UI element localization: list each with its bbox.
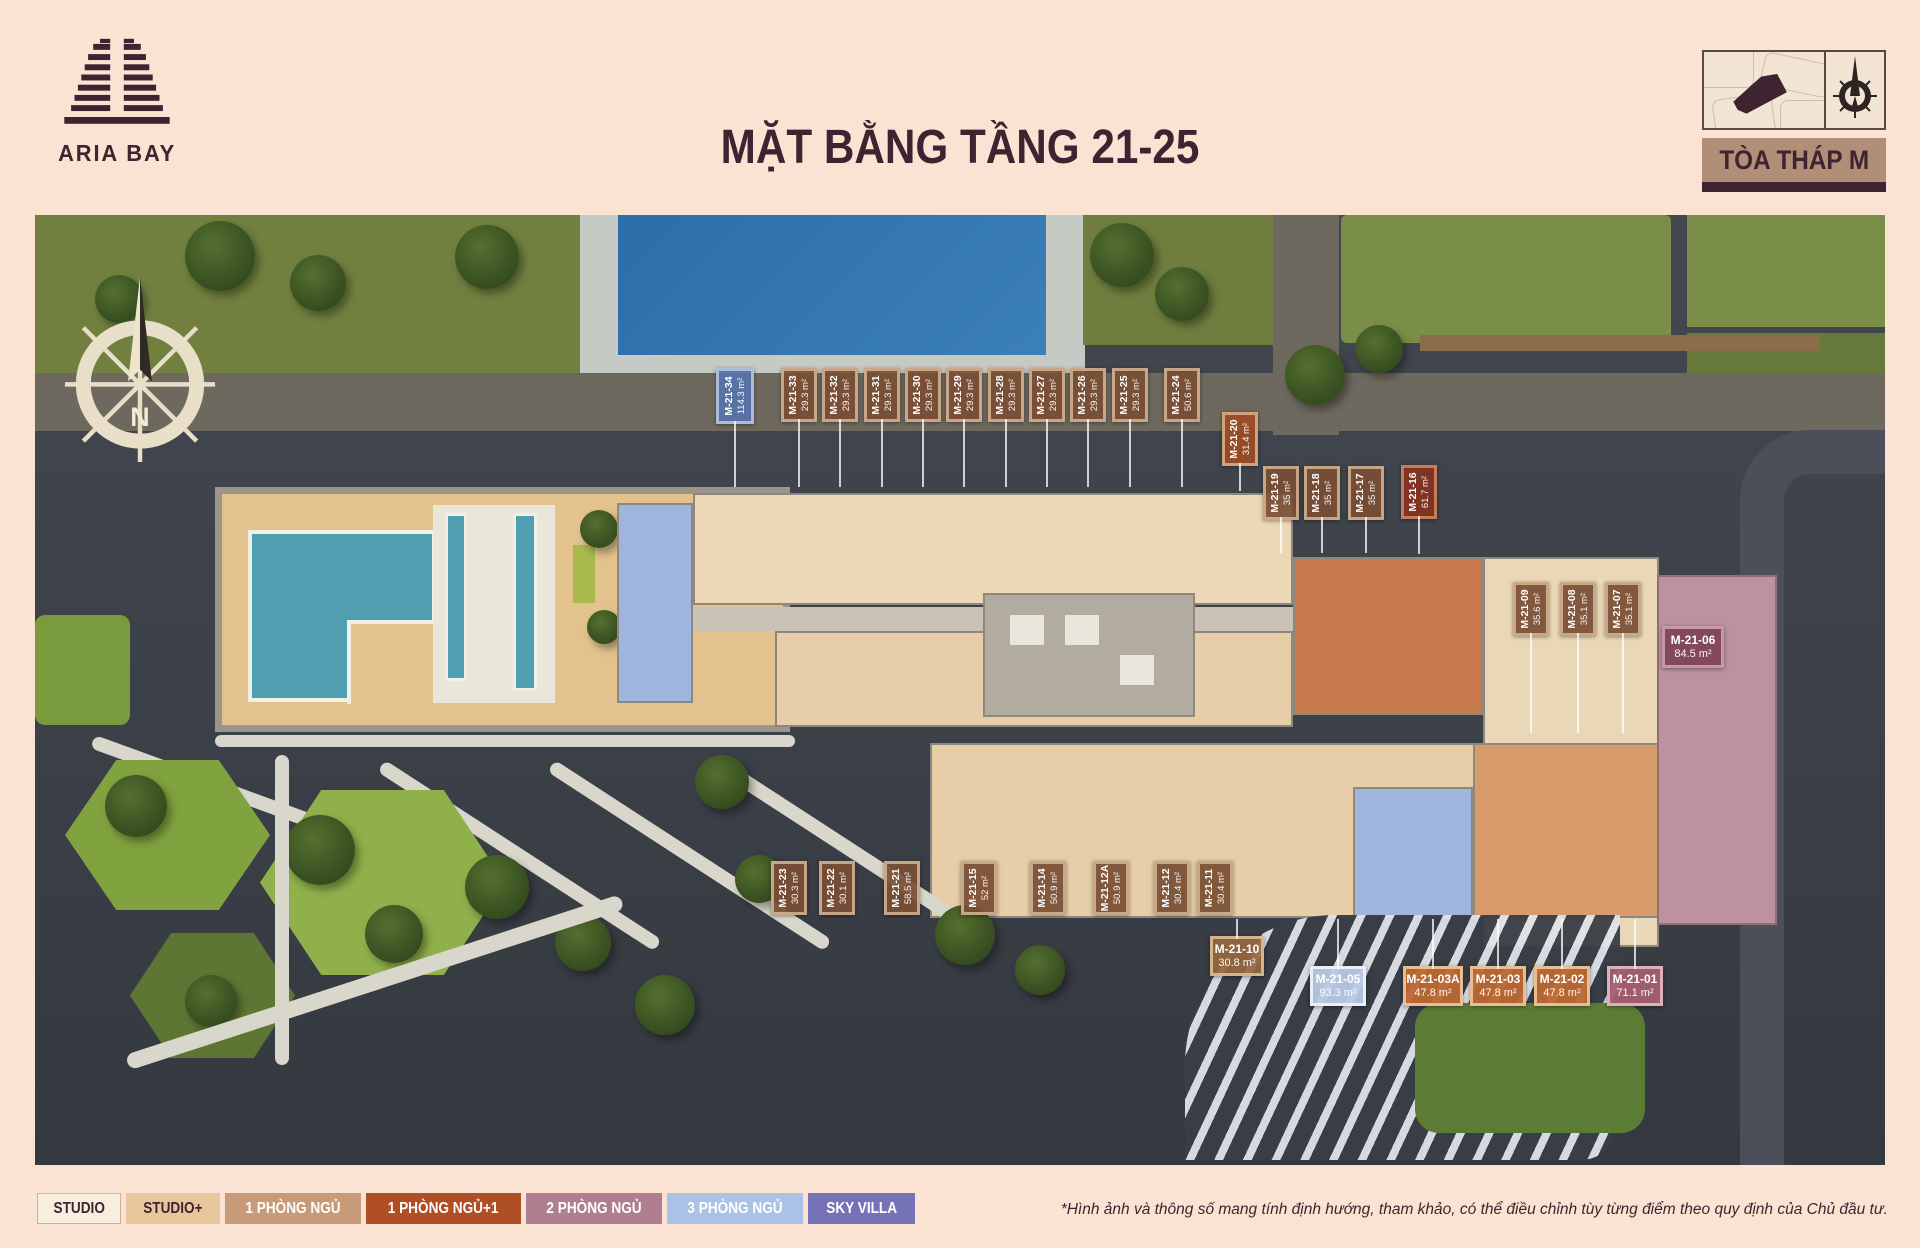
unit-row-north <box>693 493 1293 605</box>
unit-3br-south <box>1353 787 1473 917</box>
tower-badge-underline <box>1702 182 1886 192</box>
unit-area: 29.3 m² <box>883 379 894 411</box>
leader-line <box>1530 633 1532 733</box>
unit-area: 93.3 m² <box>1319 987 1356 1001</box>
leader-line <box>1280 517 1282 553</box>
garden-sliver <box>35 615 130 725</box>
unit-id: M-21-27 <box>1035 375 1048 414</box>
unit-area: 29.3 m² <box>1089 379 1100 411</box>
leader-line <box>922 419 924 487</box>
leader-line <box>1561 919 1563 969</box>
lawn-right-2 <box>1687 215 1885 327</box>
unit-label-m-21-33[interactable]: M-21-3329.3 m² <box>781 368 817 422</box>
units-orange-south <box>1473 743 1659 918</box>
unit-id: M-21-03 <box>1476 972 1521 987</box>
unit-label-m-21-09[interactable]: M-21-0935.6 m² <box>1513 582 1549 636</box>
unit-id: M-21-25 <box>1118 375 1131 414</box>
leader-line <box>1239 463 1241 491</box>
unit-label-m-21-01[interactable]: M-21-0171.1 m² <box>1607 966 1663 1006</box>
unit-area: 52 m² <box>980 876 991 900</box>
legend-label: STUDIO+ <box>144 1200 203 1218</box>
leader-line <box>1418 516 1420 554</box>
compass-icon <box>1826 52 1884 128</box>
unit-id: M-21-02 <box>1540 972 1585 987</box>
leader-line <box>1046 419 1048 487</box>
legend-label: STUDIO <box>54 1200 105 1218</box>
leader-line <box>1236 919 1238 939</box>
unit-area: 35.1 m² <box>1579 593 1590 625</box>
unit-label-m-21-14[interactable]: M-21-1450.9 m² <box>1030 861 1066 915</box>
unit-id: M-21-11 <box>1203 869 1216 908</box>
unit-label-m-21-06[interactable]: M-21-0684.5 m² <box>1662 626 1724 668</box>
page-title: MẶT BẰNG TẦNG 21-25 <box>0 120 1920 175</box>
tower-badge: TÒA THÁP M <box>1702 138 1886 182</box>
lawn-terrace <box>1415 1003 1645 1133</box>
unit-id: M-21-17 <box>1354 473 1367 512</box>
towers-logo-icon <box>57 32 177 134</box>
leader-line <box>798 419 800 487</box>
lap-pool-2 <box>513 513 537 691</box>
floorplan-poster: ARIA BAY MẶT BẰNG TẦNG 21-25 <box>0 0 1920 1248</box>
leader-line <box>1577 633 1579 733</box>
unit-area: 71.1 m² <box>1616 987 1653 1001</box>
unit-area: 30.3 m² <box>790 872 801 904</box>
unit-area: 29.3 m² <box>965 379 976 411</box>
unit-id: M-21-19 <box>1269 473 1282 512</box>
unit-label-m-21-18[interactable]: M-21-1835 m² <box>1304 466 1340 520</box>
unit-area: 35.6 m² <box>1532 593 1543 625</box>
legend-item-3[interactable]: 1 PHÒNG NGỦ <box>225 1193 361 1224</box>
unit-area: 29.3 m² <box>924 379 935 411</box>
legend-label: 1 PHÒNG NGỦ+1 <box>388 1200 499 1218</box>
unit-area: 47.8 m² <box>1543 987 1580 1001</box>
unit-area: 30.4 m² <box>1216 872 1227 904</box>
unit-area: 35 m² <box>1282 481 1293 505</box>
unit-label-m-21-17[interactable]: M-21-1735 m² <box>1348 466 1384 520</box>
unit-area: 29.3 m² <box>800 379 811 411</box>
unit-id: M-21-32 <box>828 375 841 414</box>
unit-area: 35 m² <box>1323 481 1334 505</box>
unit-label-m-21-10[interactable]: M-21-1030.8 m² <box>1210 936 1264 976</box>
unit-id: M-21-01 <box>1613 972 1658 987</box>
unit-id: M-21-34 <box>723 376 736 415</box>
unit-area: 29.3 m² <box>1131 379 1142 411</box>
unit-label-m-21-12[interactable]: M-21-1230.4 m² <box>1154 861 1190 915</box>
unit-id: M-21-05 <box>1316 972 1361 987</box>
leader-line <box>881 419 883 487</box>
unit-label-m-21-23[interactable]: M-21-2330.3 m² <box>771 861 807 915</box>
legend-label: 1 PHÒNG NGỦ <box>246 1200 341 1218</box>
leader-line <box>1622 633 1624 733</box>
unit-id: M-21-20 <box>1228 419 1241 458</box>
unit-3br-west <box>617 503 693 703</box>
unit-id: M-21-23 <box>777 868 790 907</box>
unit-area: 29.3 m² <box>841 379 852 411</box>
leader-line <box>1321 517 1323 553</box>
unit-id: M-21-21 <box>890 868 903 907</box>
unit-label-m-21-03[interactable]: M-21-0347.8 m² <box>1470 966 1526 1006</box>
unit-area: 35 m² <box>1367 481 1378 505</box>
unit-id: M-21-28 <box>994 375 1007 414</box>
leader-line <box>1129 419 1131 487</box>
unit-id: M-21-09 <box>1519 589 1532 628</box>
leader-line <box>1432 919 1434 969</box>
leader-line <box>1087 419 1089 487</box>
hedge-wall <box>1420 335 1820 351</box>
unit-id: M-21-16 <box>1407 472 1420 511</box>
legend-label: 3 PHÒNG NGỦ <box>687 1200 782 1218</box>
unit-area: 58.5 m² <box>903 872 914 904</box>
unit-label-m-21-11[interactable]: M-21-1130.4 m² <box>1197 861 1233 915</box>
leader-line <box>1181 419 1183 487</box>
unit-label-m-21-25[interactable]: M-21-2529.3 m² <box>1112 368 1148 422</box>
legend-item-4[interactable]: 1 PHÒNG NGỦ+1 <box>366 1193 520 1224</box>
unit-area: 30.4 m² <box>1173 872 1184 904</box>
leader-line <box>734 421 736 487</box>
unit-id: M-21-30 <box>911 375 924 414</box>
unit-id: M-21-12 <box>1160 868 1173 907</box>
unit-label-m-21-02[interactable]: M-21-0247.8 m² <box>1534 966 1590 1006</box>
unit-label-m-21-07[interactable]: M-21-0735.1 m² <box>1605 582 1641 636</box>
compass-rose: N <box>65 277 215 462</box>
unit-area: 114.3 m² <box>736 378 747 415</box>
unit-id: M-21-08 <box>1566 589 1579 628</box>
unit-label-m-21-26[interactable]: M-21-2629.3 m² <box>1070 368 1106 422</box>
units-orange-north <box>1293 557 1483 715</box>
unit-id: M-21-31 <box>870 375 883 414</box>
unit-id: M-21-07 <box>1611 589 1624 628</box>
unit-area: 30.8 m² <box>1218 957 1255 971</box>
unit-area: 61.7 m² <box>1420 476 1431 508</box>
leader-line <box>1337 919 1339 969</box>
unit-id: M-21-15 <box>967 868 980 907</box>
legend-item-7[interactable]: SKY VILLA <box>808 1193 915 1224</box>
unit-label-m-21-28[interactable]: M-21-2829.3 m² <box>988 368 1024 422</box>
unit-id: M-21-10 <box>1215 942 1260 957</box>
leader-line <box>1005 419 1007 487</box>
legend-item-5[interactable]: 2 PHÒNG NGỦ <box>526 1193 662 1224</box>
unit-area: 30.1 m² <box>838 872 849 904</box>
unit-id: M-21-03A <box>1406 972 1459 987</box>
legend-item-2[interactable]: STUDIO+ <box>126 1193 220 1224</box>
minimap-panel <box>1704 52 1826 128</box>
unit-area: 31.4 m² <box>1241 423 1252 455</box>
unit-area: 50.9 m² <box>1112 872 1123 904</box>
unit-label-m-21-30[interactable]: M-21-3029.3 m² <box>905 368 941 422</box>
pool-top <box>618 215 1046 355</box>
unit-id: M-21-12A <box>1099 865 1112 912</box>
unit-id: M-21-24 <box>1170 375 1183 414</box>
unit-label-m-21-34[interactable]: M-21-34114.3 m² <box>716 368 754 424</box>
unit-area: 29.3 m² <box>1007 379 1018 411</box>
unit-id: M-21-33 <box>787 375 800 414</box>
leader-line <box>1497 919 1499 969</box>
legend: STUDIOSTUDIO+1 PHÒNG NGỦ1 PHÒNG NGỦ+12 P… <box>37 1193 915 1224</box>
siteplan-render: N <box>35 215 1885 1165</box>
planter <box>573 545 595 603</box>
unit-label-m-21-31[interactable]: M-21-3129.3 m² <box>864 368 900 422</box>
unit-area: 29.3 m² <box>1048 379 1059 411</box>
unit-label-m-21-12a[interactable]: M-21-12A50.9 m² <box>1093 861 1129 915</box>
leader-line <box>839 419 841 487</box>
unit-area: 47.8 m² <box>1479 987 1516 1001</box>
garden-hex-1 <box>65 760 270 910</box>
unit-id: M-21-22 <box>825 868 838 907</box>
legend-label: SKY VILLA <box>826 1200 897 1218</box>
unit-id: M-21-06 <box>1671 633 1716 648</box>
legend-item-1[interactable]: STUDIO <box>37 1193 121 1224</box>
minimap-compass-panel <box>1826 52 1884 128</box>
unit-area: 35.1 m² <box>1624 593 1635 625</box>
pool-notch <box>347 620 437 704</box>
site-minimap <box>1702 50 1886 130</box>
unit-label-m-21-27[interactable]: M-21-2729.3 m² <box>1029 368 1065 422</box>
unit-area: 84.5 m² <box>1674 648 1711 662</box>
unit-label-m-21-15[interactable]: M-21-1552 m² <box>961 861 997 915</box>
unit-area: 50.9 m² <box>1049 872 1060 904</box>
unit-label-m-21-22[interactable]: M-21-2230.1 m² <box>819 861 855 915</box>
unit-label-m-21-24[interactable]: M-21-2450.6 m² <box>1164 368 1200 422</box>
unit-label-m-21-32[interactable]: M-21-3229.3 m² <box>822 368 858 422</box>
unit-id: M-21-29 <box>952 375 965 414</box>
unit-label-m-21-03a[interactable]: M-21-03A47.8 m² <box>1403 966 1463 1006</box>
legend-item-6[interactable]: 3 PHÒNG NGỦ <box>667 1193 803 1224</box>
unit-id: M-21-14 <box>1036 868 1049 907</box>
unit-area: 50.6 m² <box>1183 379 1194 411</box>
unit-label-m-21-05[interactable]: M-21-0593.3 m² <box>1310 966 1366 1006</box>
unit-area: 47.8 m² <box>1414 987 1451 1001</box>
unit-label-m-21-16[interactable]: M-21-1661.7 m² <box>1401 465 1437 519</box>
unit-label-m-21-08[interactable]: M-21-0835.1 m² <box>1560 582 1596 636</box>
unit-label-m-21-21[interactable]: M-21-2158.5 m² <box>884 861 920 915</box>
unit-label-m-21-29[interactable]: M-21-2929.3 m² <box>946 368 982 422</box>
unit-label-m-21-19[interactable]: M-21-1935 m² <box>1263 466 1299 520</box>
lap-pool-1 <box>445 513 467 681</box>
leader-line <box>963 419 965 487</box>
disclaimer: *Hình ảnh và thông số mang tính định hướ… <box>1061 1201 1888 1219</box>
lawn-right-1 <box>1341 215 1671 343</box>
unit-id: M-21-26 <box>1076 375 1089 414</box>
unit-label-m-21-20[interactable]: M-21-2031.4 m² <box>1222 412 1258 466</box>
leader-line <box>1365 517 1367 553</box>
leader-line <box>1634 919 1636 969</box>
unit-id: M-21-18 <box>1310 473 1323 512</box>
legend-label: 2 PHÒNG NGỦ <box>546 1200 641 1218</box>
core-lobby <box>983 593 1195 717</box>
svg-text:N: N <box>130 402 149 432</box>
